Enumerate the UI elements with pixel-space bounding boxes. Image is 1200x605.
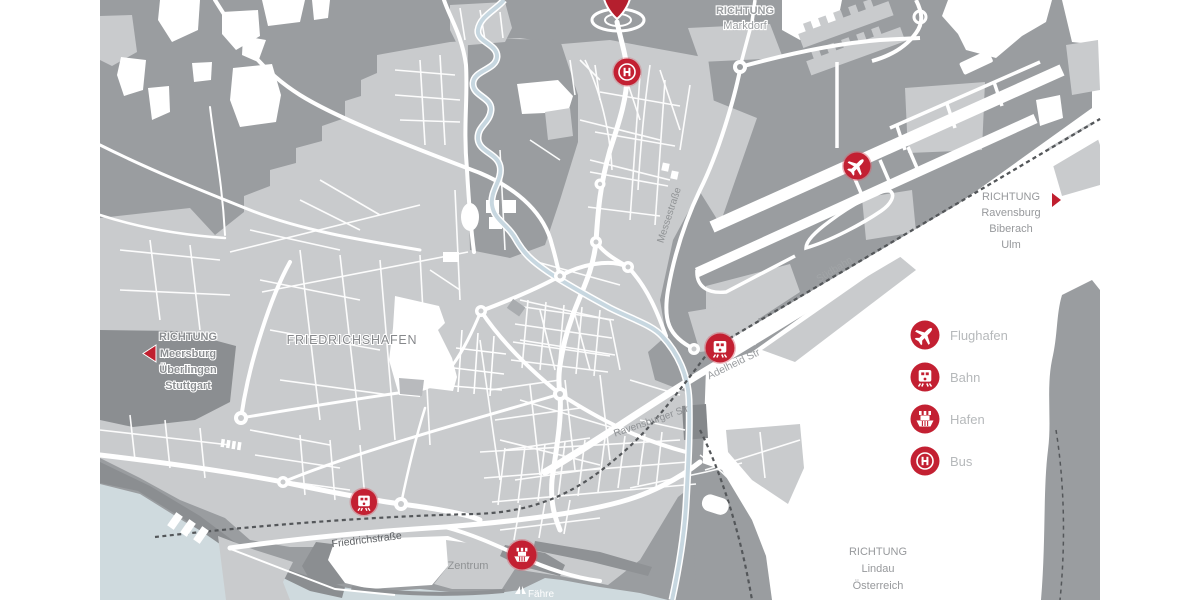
svg-text:Stuttgart: Stuttgart <box>165 380 211 392</box>
svg-text:FRIEDRICHSHAFEN: FRIEDRICHSHAFEN <box>287 333 418 347</box>
svg-text:Fähre: Fähre <box>528 589 555 600</box>
svg-text:Österreich: Österreich <box>853 580 904 592</box>
svg-text:Lindau: Lindau <box>861 563 894 575</box>
svg-text:Flughafen: Flughafen <box>950 328 1008 343</box>
svg-text:RICHTUNG: RICHTUNG <box>849 546 907 558</box>
svg-text:RICHTUNG: RICHTUNG <box>159 331 217 343</box>
svg-text:Zentrum: Zentrum <box>448 560 489 572</box>
svg-text:Markdorf: Markdorf <box>723 20 767 32</box>
svg-text:Bus: Bus <box>950 454 973 469</box>
svg-text:Hafen: Hafen <box>950 412 985 427</box>
svg-text:Biberach: Biberach <box>989 223 1032 235</box>
svg-text:Meersburg: Meersburg <box>160 348 216 360</box>
svg-text:Ravensburg: Ravensburg <box>981 207 1040 219</box>
svg-text:Überlingen: Überlingen <box>159 363 217 376</box>
svg-text:RICHTUNG: RICHTUNG <box>982 191 1040 203</box>
svg-text:RICHTUNG: RICHTUNG <box>716 5 774 17</box>
svg-text:Ulm: Ulm <box>1001 239 1021 251</box>
svg-text:Bahn: Bahn <box>950 370 980 385</box>
